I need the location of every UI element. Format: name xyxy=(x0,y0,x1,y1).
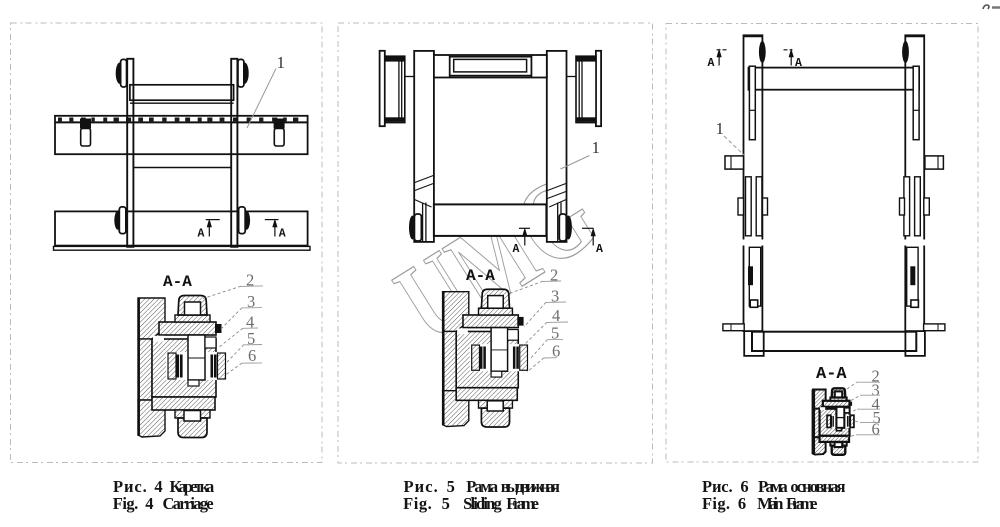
svg-text:A-A: A-A xyxy=(816,365,847,384)
svg-text:5: 5 xyxy=(442,494,450,513)
svg-text:4: 4 xyxy=(145,494,153,513)
svg-text:Fig.: Fig. xyxy=(702,494,730,513)
svg-text:Main: Main xyxy=(757,494,783,513)
svg-text:A-A: A-A xyxy=(466,267,495,285)
svg-text:A: A xyxy=(596,243,603,256)
svg-text:4: 4 xyxy=(154,477,162,496)
svg-text:A: A xyxy=(708,57,715,70)
svg-text:6: 6 xyxy=(248,346,256,365)
svg-text:A: A xyxy=(795,57,802,70)
svg-text:1: 1 xyxy=(277,53,286,72)
svg-text:Fig.: Fig. xyxy=(113,494,138,513)
svg-text:Frame: Frame xyxy=(506,494,539,513)
svg-text:Carriage: Carriage xyxy=(163,494,214,513)
svg-text:Fig.: Fig. xyxy=(403,494,432,513)
svg-text:Frame: Frame xyxy=(786,494,818,513)
svg-text:A: A xyxy=(279,228,286,241)
svg-text:A: A xyxy=(513,243,520,256)
svg-text:A-A: A-A xyxy=(163,273,192,291)
svg-text:A: A xyxy=(198,228,205,241)
svg-text:1: 1 xyxy=(716,119,725,138)
svg-text:Sliding: Sliding xyxy=(463,494,502,513)
svg-text:6: 6 xyxy=(738,494,746,513)
svg-text:1: 1 xyxy=(592,138,601,157)
